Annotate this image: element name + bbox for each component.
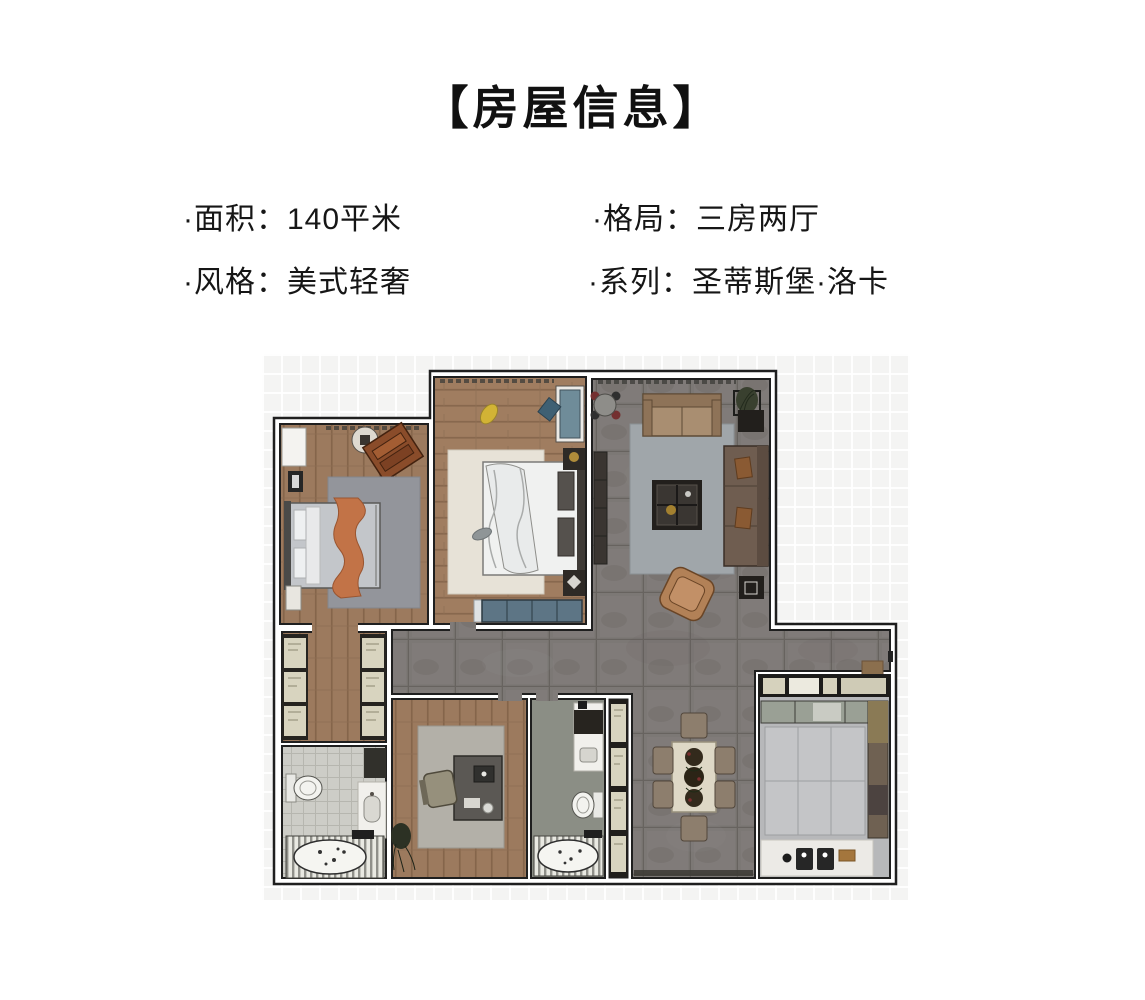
study	[391, 699, 527, 878]
sofa-top	[643, 394, 721, 436]
entry-doormat	[862, 661, 883, 675]
dining-table	[672, 742, 716, 812]
window-bench	[474, 600, 582, 622]
tall-cabinet-column	[868, 701, 888, 838]
info-style: ·风格：美式轻奢	[183, 257, 411, 301]
wardrobe-left	[282, 634, 308, 740]
dining-chair	[653, 747, 673, 774]
master-bedroom	[280, 423, 428, 624]
bathtub	[286, 830, 384, 878]
door-opening	[536, 691, 558, 701]
coffee-table	[652, 480, 702, 530]
master-bed	[284, 498, 380, 598]
window-shelf	[282, 428, 306, 466]
bathroom-2	[531, 699, 605, 878]
tv-console	[594, 452, 607, 564]
info-layout: ·格局：三房两厅	[592, 194, 820, 238]
info-area: ·面积：140平米	[183, 194, 402, 238]
kitchen-pass-counter	[759, 675, 890, 697]
kettle	[783, 854, 792, 863]
nightstand-bottom	[563, 570, 585, 596]
vanity	[574, 701, 603, 771]
poster-page: 【房屋信息】 ·面积：140平米 ·格局：三房两厅 ·风格：美式轻奢 ·系列：圣…	[0, 0, 1145, 1000]
bath-cabinet	[364, 748, 386, 778]
bath-tray	[352, 830, 374, 839]
vanity	[358, 782, 386, 838]
cutting-board	[839, 850, 855, 861]
hall-cabinet-column	[609, 699, 628, 878]
side-table-top	[738, 410, 764, 432]
entry-door-handle	[888, 651, 893, 662]
toilet	[286, 774, 322, 802]
door-opening	[450, 622, 476, 632]
dining-chair	[715, 747, 735, 774]
glass-wardrobe	[556, 386, 584, 442]
sofa-right	[724, 446, 768, 566]
kitchen-floor-tiles	[765, 727, 865, 835]
wardrobe-right	[360, 634, 386, 740]
guest-bed	[471, 460, 585, 577]
bedside-cabinet	[286, 586, 301, 610]
dining-chair	[653, 781, 673, 808]
entry-table-set	[591, 392, 621, 420]
dining-chair	[715, 781, 735, 808]
walk-in-closet	[282, 632, 386, 742]
bedroom-2	[434, 377, 586, 624]
window-track	[634, 870, 753, 876]
master-bathroom	[282, 746, 386, 878]
nightstand-top	[563, 448, 585, 470]
bath-tray	[584, 830, 602, 838]
sink-counter	[761, 840, 873, 876]
bathtub	[534, 830, 603, 876]
door-opening	[312, 620, 358, 634]
dining-chair	[681, 713, 707, 738]
floor-plan	[268, 358, 904, 892]
upper-cabinets	[761, 701, 868, 723]
page-title: 【房屋信息】	[0, 72, 1145, 138]
dining-chair	[681, 816, 707, 841]
door-opening	[498, 691, 522, 701]
side-table-bottom	[739, 576, 764, 599]
info-series: ·系列：圣蒂斯堡·洛卡	[588, 257, 889, 301]
desk	[454, 756, 502, 820]
kitchen	[759, 675, 890, 878]
toilet	[572, 792, 603, 818]
